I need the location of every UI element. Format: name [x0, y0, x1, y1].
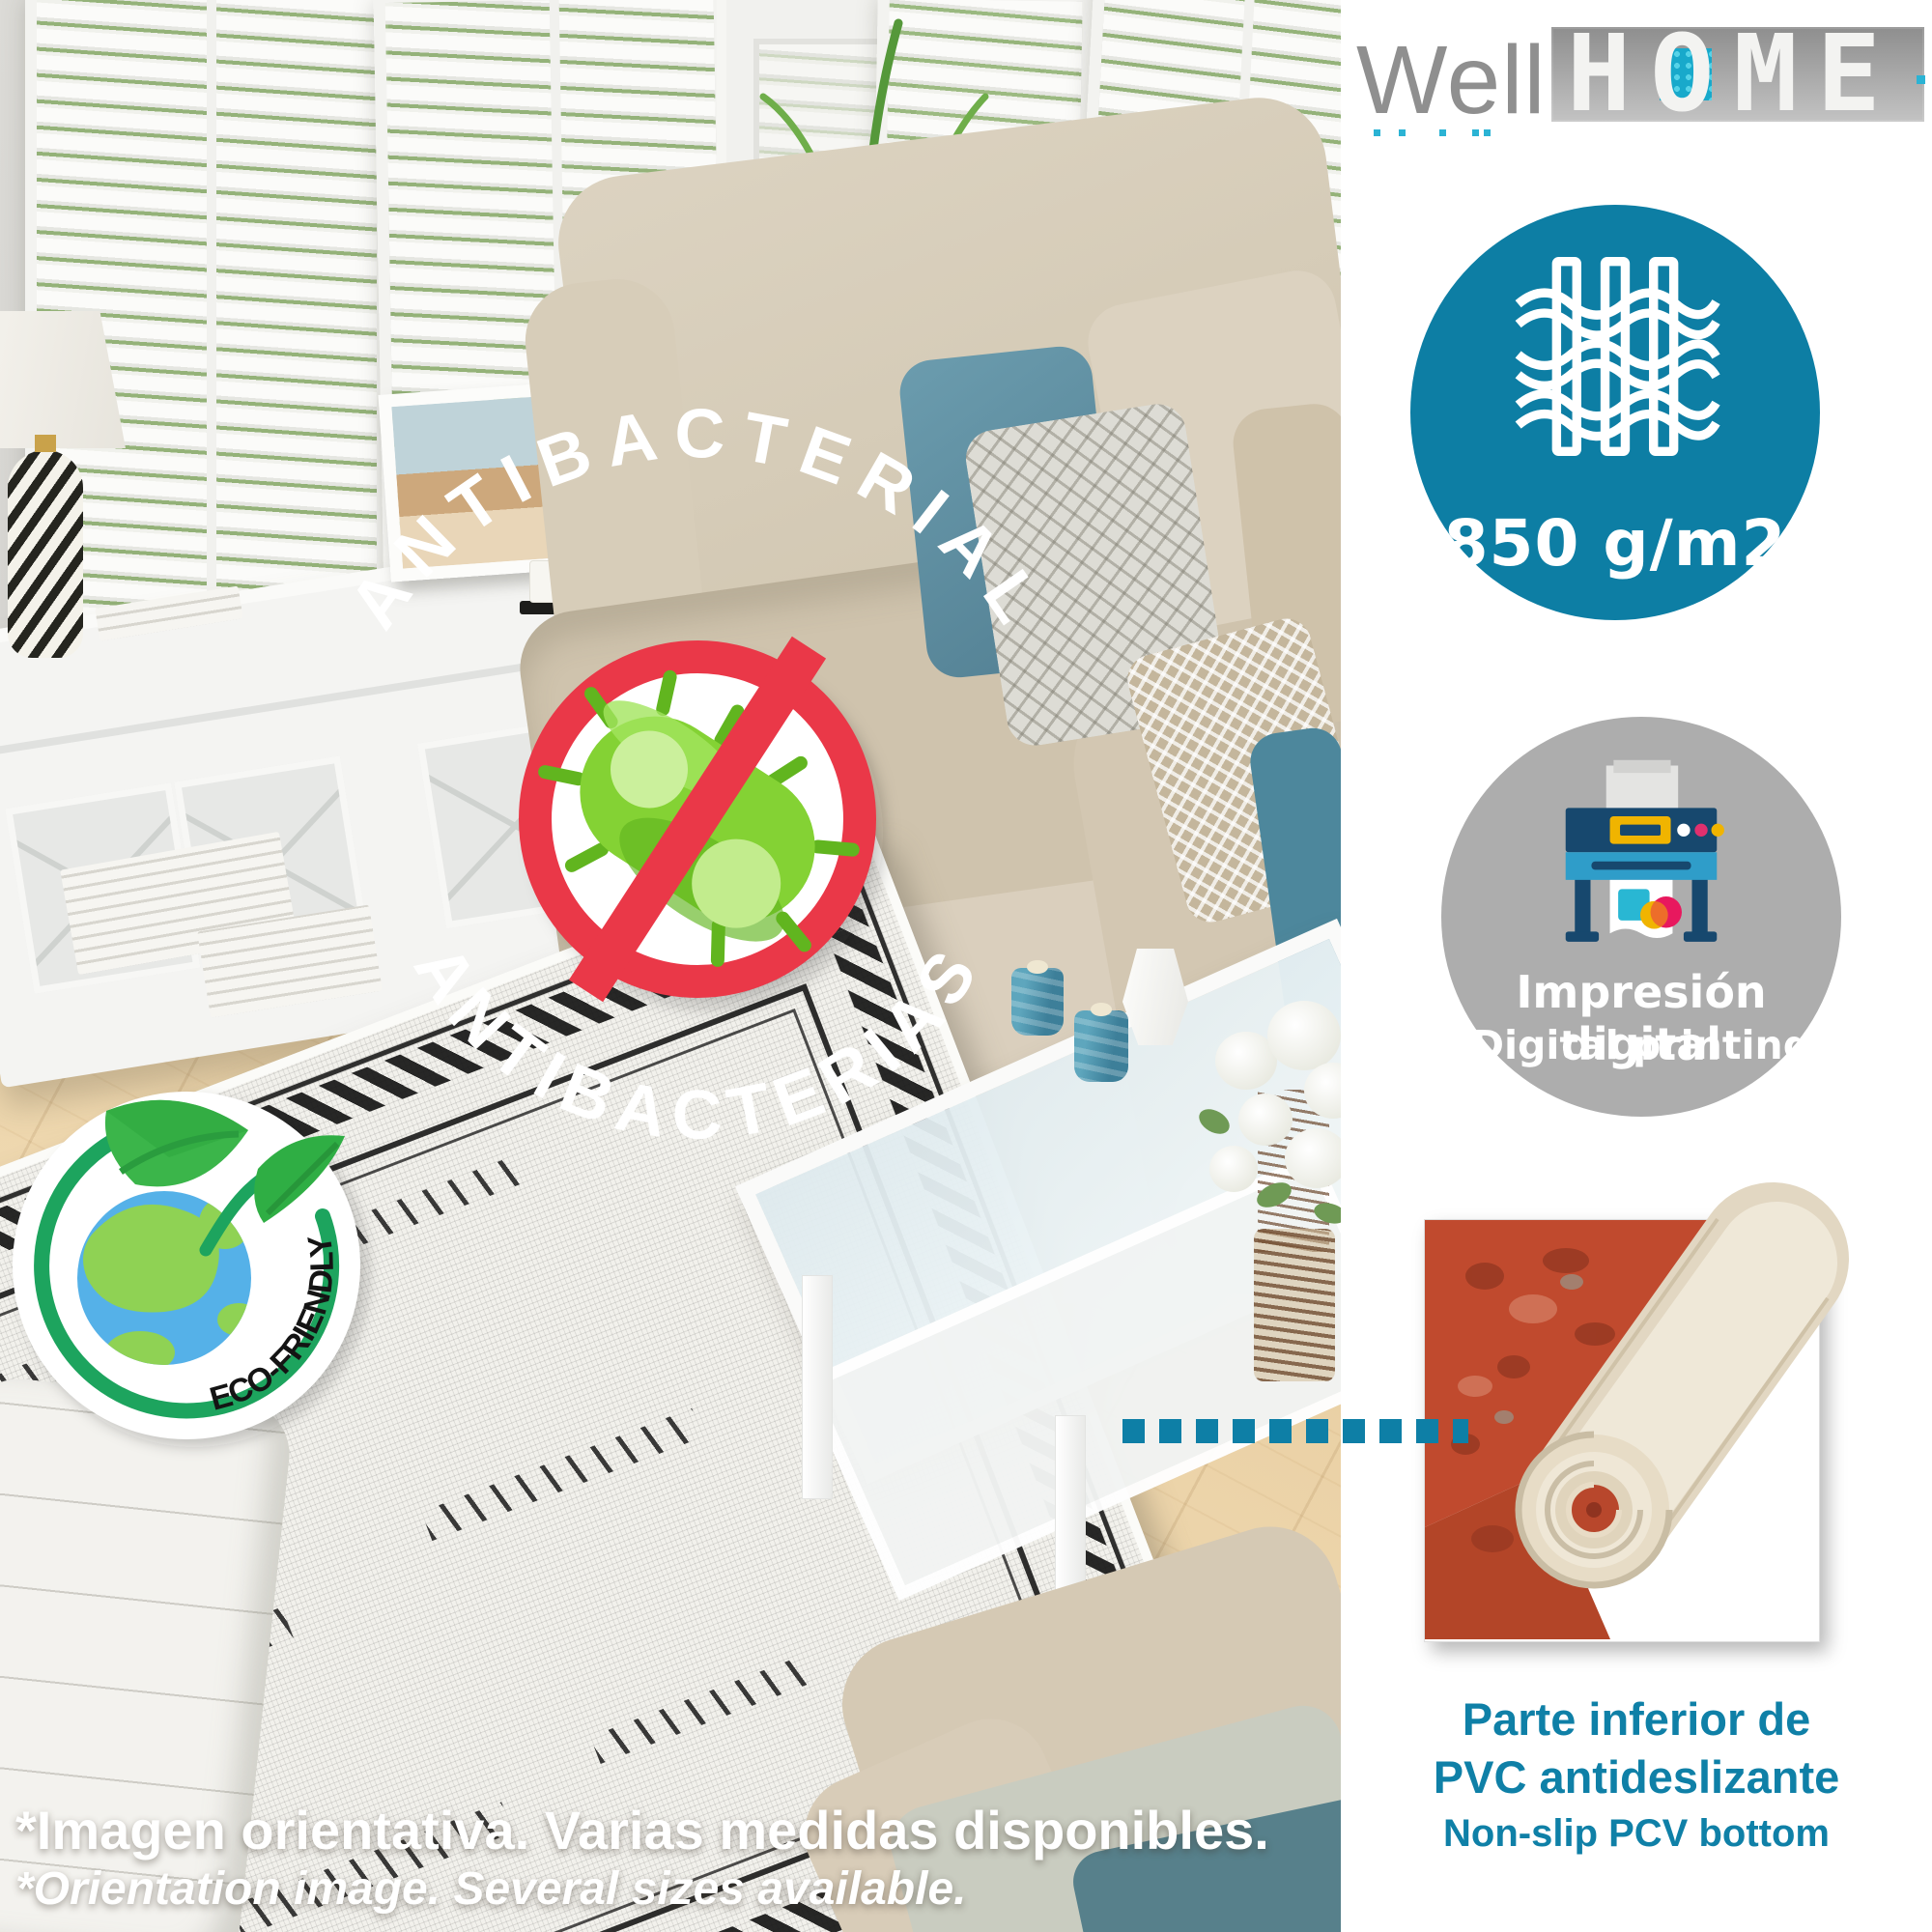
disclaimer-es: *Imagen orientativa. Varias medidas disp…: [15, 1799, 1269, 1861]
weight-badge: 850 g/m2: [1410, 205, 1820, 620]
brand-logo: Well HOME: [1347, 19, 1926, 145]
coffee-table-leg: [802, 1275, 833, 1499]
rolled-rug-photo: [1424, 1219, 1820, 1642]
pvc-note-line3: Non-slip PCV bottom: [1341, 1812, 1932, 1856]
product-marketing-image: Well HOME: [0, 0, 1932, 1932]
pvc-note-line1: Parte inferior de: [1341, 1692, 1932, 1746]
printing-badge: Impresión digital Digital printing: [1441, 717, 1841, 1117]
pvc-note-line2: PVC antideslizante: [1341, 1750, 1932, 1804]
logo-dot-icon: [1374, 129, 1380, 136]
printing-label-en: Digital printing: [1441, 1022, 1841, 1068]
logo-well-text: Well: [1356, 25, 1547, 136]
logo-dot-icon: [1399, 129, 1406, 136]
info-panel: Well HOME: [1341, 0, 1932, 1932]
glass-flower-vase: [1254, 1229, 1335, 1381]
antibacterial-badge: ANTIBACTERIAL ANTIBACTERIAS: [319, 435, 1072, 1188]
fabric-weave-icon: [1504, 245, 1726, 468]
printer-icon: [1540, 755, 1743, 958]
eco-friendly-badge: ECO-FRIENDLY: [5, 1080, 377, 1452]
teal-vase: [1074, 1010, 1128, 1082]
logo-dot-icon: [1472, 129, 1479, 136]
logo-dot-icon: [1484, 129, 1491, 136]
white-flower: [1267, 1001, 1341, 1070]
white-flower: [1285, 1128, 1341, 1188]
logo-dot-icon: [1917, 75, 1925, 84]
white-flower: [1238, 1094, 1293, 1146]
rolled-rug-graphic: [1425, 1220, 1817, 1639]
weight-value: 850 g/m2: [1410, 506, 1820, 581]
white-flower: [1209, 1146, 1258, 1192]
logo-dot-icon: [1439, 129, 1446, 136]
table-lamp-base: [8, 450, 83, 658]
dashed-connector-line: [1122, 1419, 1468, 1443]
logo-home-block: HOME: [1551, 27, 1924, 122]
logo-home-text: HOME: [1551, 27, 1924, 120]
disclaimer-en: *Orientation image. Several sizes availa…: [15, 1862, 966, 1916]
